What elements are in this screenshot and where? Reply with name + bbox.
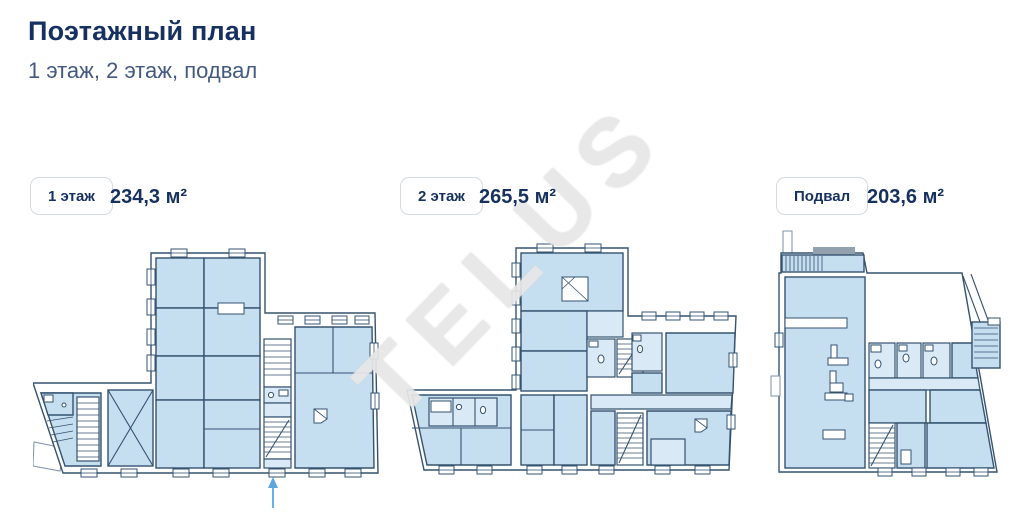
main-hall (785, 277, 865, 468)
floorplan-1-drawing (33, 247, 395, 511)
floor-2-badge[interactable]: 2 этаж (400, 177, 483, 215)
wc-rooms (869, 343, 950, 378)
floor-1-area: 234,3 м² (110, 186, 187, 209)
vent-shaft-icon (314, 409, 327, 423)
shaft-x-room (108, 390, 153, 466)
page-subtitle: 1 этаж, 2 этаж, подвал (28, 58, 257, 84)
entrance-stairs (782, 255, 864, 272)
floor-1-badge[interactable]: 1 этаж (30, 177, 113, 215)
staircase (617, 413, 643, 465)
entrance-arrow-icon (268, 477, 278, 508)
floorplan-basement-drawing (766, 228, 1022, 486)
floor-2-area: 265,5 м² (479, 186, 556, 209)
basement-badge[interactable]: Подвал (776, 177, 868, 215)
floorplan-page: Поэтажный план 1 этаж, 2 этаж, подвал TE… (0, 0, 1024, 521)
floorplan-2-drawing (399, 243, 739, 501)
annex-stairs (972, 318, 1000, 368)
fireplace-icon (562, 277, 588, 301)
bathtub-icon (431, 401, 451, 412)
stairwell (264, 339, 291, 468)
page-title: Поэтажный план (28, 16, 257, 47)
basement-area: 203,6 м² (867, 186, 944, 209)
staircase (869, 423, 895, 468)
